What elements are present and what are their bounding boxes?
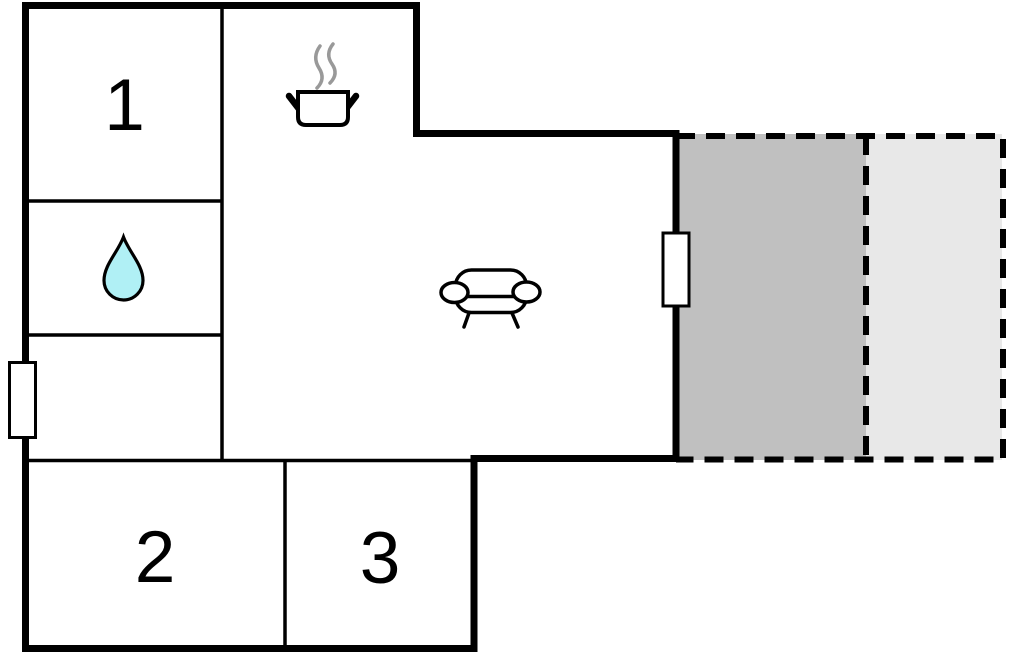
room-3-label: 3 bbox=[360, 518, 401, 599]
terrace-open-area bbox=[866, 134, 1002, 460]
door-left bbox=[10, 363, 36, 438]
sofa-armrest-right bbox=[513, 282, 540, 302]
sofa-armrest-left bbox=[441, 283, 468, 303]
room-2-label: 2 bbox=[135, 517, 176, 598]
room-1-label: 1 bbox=[104, 65, 145, 146]
terrace-covered-area bbox=[678, 134, 866, 460]
pot-body bbox=[298, 92, 348, 125]
floor-plan-canvas: 1 2 3 bbox=[0, 0, 1009, 652]
terrace bbox=[676, 134, 1003, 460]
floor-plan-drawing: 1 2 3 bbox=[0, 0, 1009, 652]
door-right bbox=[663, 233, 689, 306]
